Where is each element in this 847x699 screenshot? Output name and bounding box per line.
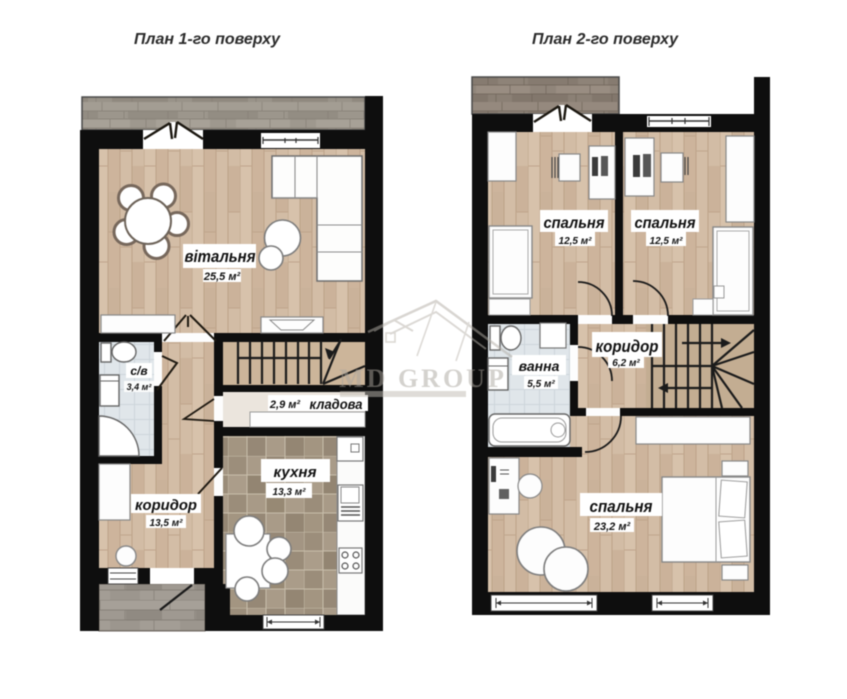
svg-text:13,3 м²: 13,3 м² <box>273 487 307 498</box>
svg-text:спальня: спальня <box>590 497 653 516</box>
svg-text:6,2 м²: 6,2 м² <box>612 358 640 369</box>
svg-text:12,5 м²: 12,5 м² <box>559 236 593 247</box>
svg-text:с/в: с/в <box>130 364 147 378</box>
svg-text:23,2 м²: 23,2 м² <box>593 521 631 533</box>
svg-text:13,5 м²: 13,5 м² <box>150 518 184 529</box>
svg-text:коридор: коридор <box>135 497 197 514</box>
svg-text:MD GROUP: MD GROUP <box>339 364 507 393</box>
svg-text:кладова: кладова <box>310 396 363 412</box>
svg-text:ванна: ванна <box>519 358 560 374</box>
svg-text:25,5 м²: 25,5 м² <box>203 271 241 283</box>
svg-text:План 1-го поверху: План 1-го поверху <box>134 31 281 48</box>
svg-text:2,9 м²: 2,9 м² <box>269 399 300 411</box>
svg-text:12,5 м²: 12,5 м² <box>650 236 684 247</box>
svg-text:кухня: кухня <box>274 464 317 481</box>
svg-text:вітальня: вітальня <box>185 247 256 266</box>
svg-text:коридор: коридор <box>596 337 659 356</box>
svg-text:План 2-го поверху: План 2-го поверху <box>532 31 679 48</box>
svg-text:спальня: спальня <box>635 215 697 232</box>
svg-text:3,4 м²: 3,4 м² <box>127 382 153 392</box>
svg-text:спальня: спальня <box>544 215 606 232</box>
svg-text:5,5 м²: 5,5 м² <box>527 379 555 390</box>
